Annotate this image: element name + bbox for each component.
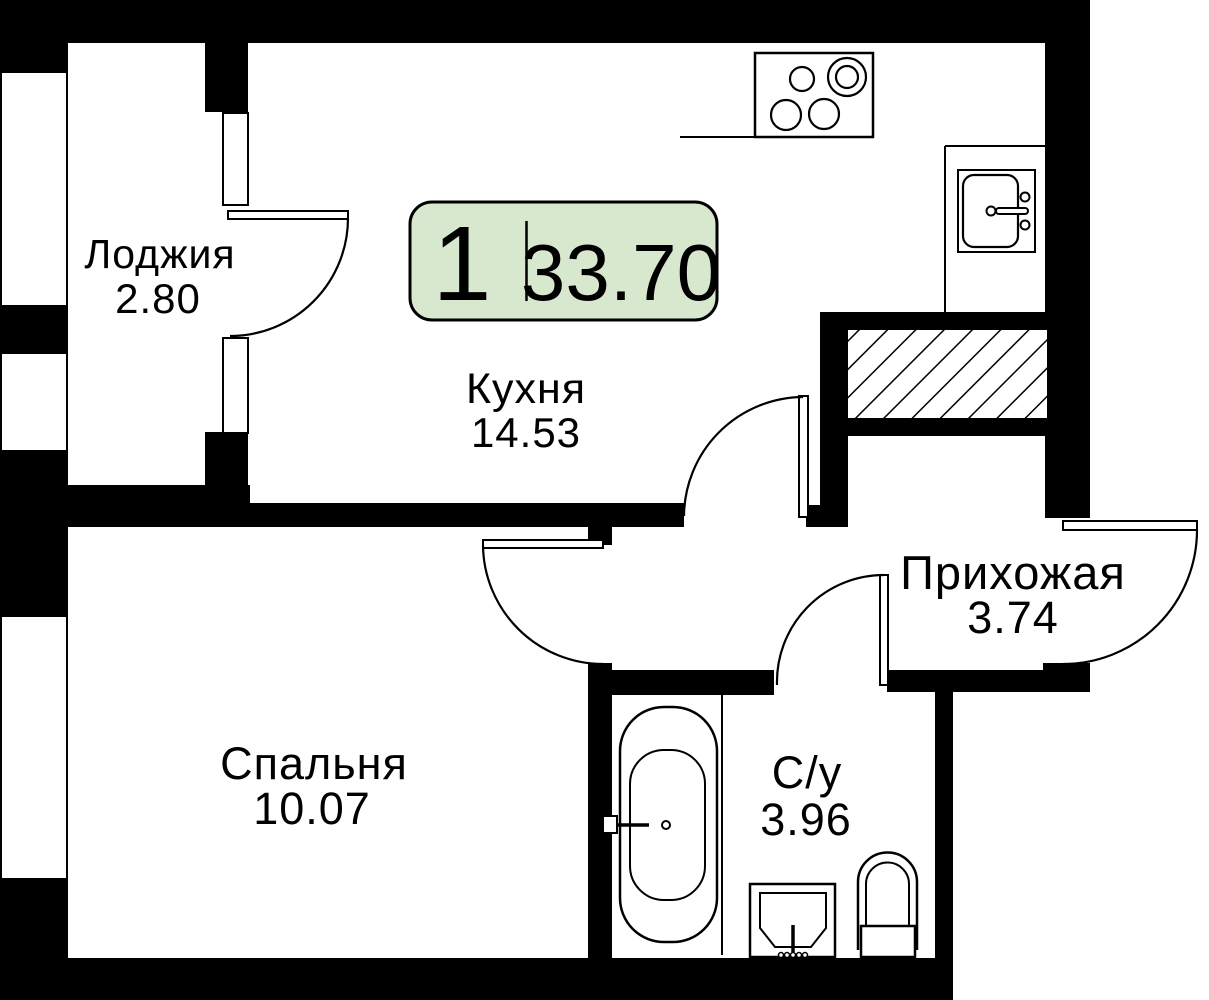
wall-bath-top-right: [887, 670, 1088, 692]
bedroom-name-label: Спальня: [220, 738, 408, 789]
hallway-area-label: 3.74: [967, 592, 1059, 643]
washbasin-icon: [750, 884, 835, 958]
window-loggia-lower: [1, 353, 67, 451]
wall-bath-top-left: [612, 670, 774, 695]
wall-shaft-top: [820, 312, 1047, 330]
bedroom-area-label: 10.07: [253, 783, 371, 834]
wall-bottom: [0, 958, 953, 1000]
bedroom-door-leaf: [483, 540, 603, 548]
bathroom-name-label: С/у: [772, 747, 843, 798]
wall-top-left-corner: [0, 0, 68, 72]
floor-plan: 1 33.70 Лоджия 2.80 Кухня 14.53 Прихожая…: [0, 0, 1209, 1000]
kitchen-sink-icon: [958, 170, 1035, 252]
unit-badge-rooms-count: 1: [433, 205, 492, 323]
unit-badge: 1 33.70: [410, 202, 721, 323]
window-panel-balcony-top: [223, 113, 248, 205]
kitchen-area-label: 14.53: [471, 409, 581, 456]
wall-loggia-pier-top: [205, 43, 248, 112]
loggia-name-label: Лоджия: [84, 231, 235, 277]
kitchen-door-leaf: [799, 396, 808, 517]
wall-kitchen-bottom: [248, 503, 684, 527]
wall-right-column: [1045, 0, 1090, 518]
wall-left-mid: [0, 451, 68, 616]
bathroom-area-label: 3.96: [760, 794, 852, 845]
wall-bedroom-right: [588, 663, 612, 958]
stove-icon: [755, 53, 873, 137]
window-bedroom: [1, 616, 67, 879]
balcony-door-leaf: [228, 211, 348, 219]
bathroom-door-leaf: [880, 575, 888, 685]
wall-shaft-bottom: [820, 418, 1047, 436]
wall-bath-right: [935, 670, 953, 1000]
window-loggia-upper: [1, 72, 67, 306]
window-panel-balcony-bottom: [223, 338, 248, 433]
wall-left-pier: [0, 306, 68, 353]
entrance-door-leaf: [1063, 521, 1197, 530]
kitchen-name-label: Кухня: [466, 365, 586, 413]
bathtub-icon: [603, 707, 717, 942]
wall-loggia-bottom: [0, 485, 250, 527]
duct-shaft-hatch: [848, 330, 1047, 418]
wall-top: [0, 0, 1090, 43]
loggia-area-label: 2.80: [115, 275, 201, 322]
unit-badge-total-area: 33.70: [521, 228, 721, 317]
